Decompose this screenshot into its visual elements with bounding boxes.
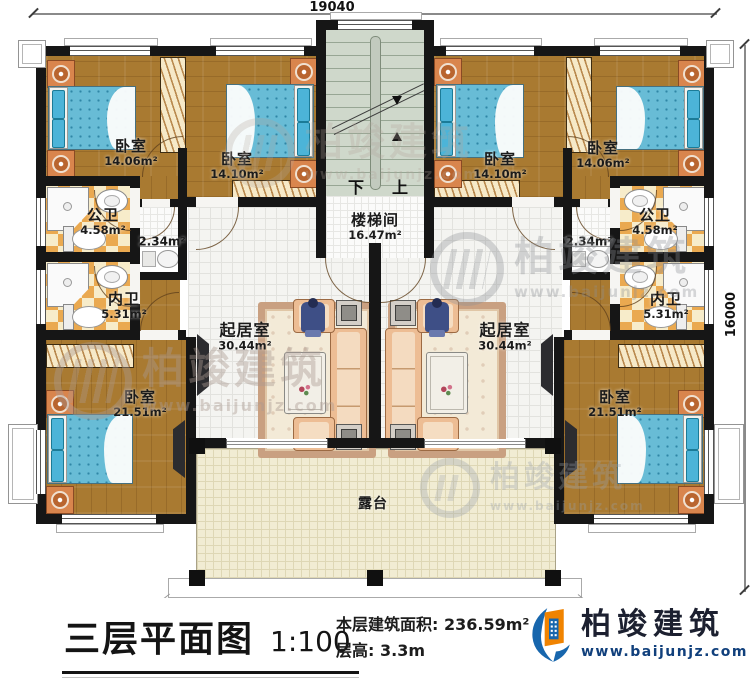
person-figure bbox=[301, 302, 325, 332]
end-table bbox=[390, 300, 416, 326]
window-sill bbox=[440, 38, 542, 46]
window bbox=[704, 430, 714, 494]
door-opening bbox=[130, 188, 140, 228]
window-sill bbox=[56, 524, 164, 533]
floor-height-label: 层高: bbox=[336, 641, 374, 660]
nightstand bbox=[678, 486, 706, 514]
end-table bbox=[336, 300, 362, 326]
brand-website: www.baijunjz.com bbox=[581, 644, 748, 660]
wall bbox=[36, 176, 136, 186]
window-sill bbox=[210, 38, 312, 46]
window bbox=[704, 270, 714, 324]
floor-area-value: 236.59m² bbox=[444, 615, 529, 634]
wall bbox=[424, 20, 434, 258]
sliding-door bbox=[424, 439, 526, 448]
wall bbox=[614, 176, 714, 186]
column bbox=[189, 570, 205, 586]
nightstand bbox=[434, 58, 462, 86]
sliding-door bbox=[226, 439, 328, 448]
room-label-living-left: 起居室30.44m² bbox=[218, 322, 271, 353]
window bbox=[338, 20, 412, 30]
window-sill bbox=[594, 38, 688, 46]
window bbox=[62, 514, 156, 524]
wall bbox=[178, 176, 187, 280]
window-sill bbox=[64, 38, 158, 46]
wall bbox=[563, 176, 572, 280]
coffee-table bbox=[426, 352, 468, 414]
window bbox=[594, 514, 688, 524]
door-opening bbox=[196, 197, 238, 207]
column bbox=[367, 570, 383, 586]
door-opening bbox=[580, 199, 608, 207]
stair-up-label: 上 bbox=[392, 174, 408, 198]
bay-window bbox=[714, 424, 744, 504]
door-opening bbox=[512, 197, 554, 207]
floor-area-label: 本层建筑面积: bbox=[336, 615, 438, 634]
wall bbox=[136, 272, 180, 280]
corner-pier bbox=[706, 40, 734, 68]
bed bbox=[47, 414, 133, 484]
wall bbox=[369, 243, 381, 448]
window bbox=[600, 46, 680, 56]
column bbox=[545, 438, 561, 454]
window bbox=[216, 46, 304, 56]
room-label-bedroom-tr: 卧室14.06m² bbox=[576, 140, 629, 170]
room-label-bedroom-br: 卧室21.51m² bbox=[588, 389, 641, 419]
floor-plan-canvas: 19040 16000 bbox=[0, 0, 750, 678]
window bbox=[36, 430, 46, 494]
room-label-private-bath-right: 内卫5.31m² bbox=[643, 291, 688, 321]
bed bbox=[617, 414, 703, 484]
brand-name: 柏竣建筑 bbox=[581, 610, 748, 640]
tv bbox=[541, 334, 553, 396]
bed bbox=[226, 84, 314, 158]
floor-height-value: 3.3m bbox=[380, 641, 425, 660]
plan-title: 三层平面图1:100 bbox=[62, 610, 359, 674]
column bbox=[189, 438, 205, 454]
terrace-floor bbox=[196, 448, 556, 580]
right-dimension-value: 16000 bbox=[724, 292, 739, 337]
brand-logo-icon bbox=[523, 606, 575, 664]
room-label-terrace: 露台 bbox=[358, 497, 388, 513]
column bbox=[545, 570, 561, 586]
window-sill bbox=[588, 524, 696, 533]
room-label-closet-left: 2.34m² bbox=[138, 235, 185, 248]
person-figure bbox=[425, 302, 449, 332]
nightstand bbox=[678, 150, 706, 178]
wall bbox=[570, 272, 614, 280]
tv bbox=[173, 420, 185, 478]
nightstand bbox=[47, 60, 75, 88]
washbasin-counter bbox=[568, 246, 614, 274]
wall bbox=[614, 252, 714, 262]
room-label-living-right: 起居室30.44m² bbox=[478, 322, 531, 353]
window bbox=[704, 198, 714, 246]
wall bbox=[316, 20, 326, 258]
door-opening bbox=[142, 199, 170, 207]
nightstand bbox=[434, 160, 462, 188]
corner-pier bbox=[18, 40, 46, 68]
room-label-public-bath-left: 公卫4.58m² bbox=[80, 207, 125, 237]
coffee-table bbox=[284, 352, 326, 414]
window bbox=[446, 46, 534, 56]
room-label-bedroom-tr2: 卧室14.10m² bbox=[473, 151, 526, 181]
nightstand bbox=[46, 486, 74, 514]
wall bbox=[326, 438, 424, 448]
room-label-bedroom-tl: 卧室14.06m² bbox=[104, 138, 157, 168]
nightstand bbox=[290, 58, 318, 86]
wardrobe bbox=[618, 344, 706, 368]
wardrobe bbox=[46, 344, 134, 368]
brand-block: 柏竣建筑 www.baijunjz.com bbox=[523, 606, 748, 664]
wall bbox=[36, 252, 136, 262]
bed bbox=[436, 84, 524, 158]
room-label-closet-right: 2.34m² bbox=[565, 235, 612, 248]
window-sill bbox=[330, 12, 422, 20]
bay-window bbox=[8, 424, 38, 504]
door-opening bbox=[140, 330, 178, 340]
nightstand bbox=[47, 150, 75, 178]
room-label-private-bath-left: 内卫5.31m² bbox=[101, 291, 146, 321]
window bbox=[70, 46, 150, 56]
tv bbox=[197, 334, 209, 396]
nightstand bbox=[290, 160, 318, 188]
wall bbox=[554, 337, 564, 524]
title-block: 三层平面图1:100 本层建筑面积: 236.59m² 层高: 3.3m 柏竣建… bbox=[0, 598, 750, 678]
door-opening bbox=[572, 330, 610, 340]
stair-direction-arrow bbox=[392, 96, 402, 105]
window bbox=[36, 198, 46, 246]
window bbox=[36, 270, 46, 324]
stair-direction-arrow bbox=[392, 132, 402, 141]
room-label-public-bath-right: 公卫4.58m² bbox=[632, 207, 677, 237]
door-opening bbox=[610, 188, 620, 228]
plan-stats: 本层建筑面积: 236.59m² 层高: 3.3m bbox=[336, 612, 529, 665]
stair-down-label: 下 bbox=[348, 174, 364, 198]
room-label-stairwell: 楼梯间16.47m² bbox=[348, 212, 401, 242]
door-opening bbox=[610, 264, 620, 304]
right-dimension-line bbox=[744, 45, 746, 592]
nightstand bbox=[678, 60, 706, 88]
plan-title-text: 三层平面图 bbox=[64, 619, 254, 660]
tv bbox=[565, 420, 577, 478]
room-label-bedroom-bl: 卧室21.51m² bbox=[113, 389, 166, 419]
room-label-bedroom-tl2: 卧室14.10m² bbox=[210, 151, 263, 181]
wall bbox=[186, 337, 196, 524]
